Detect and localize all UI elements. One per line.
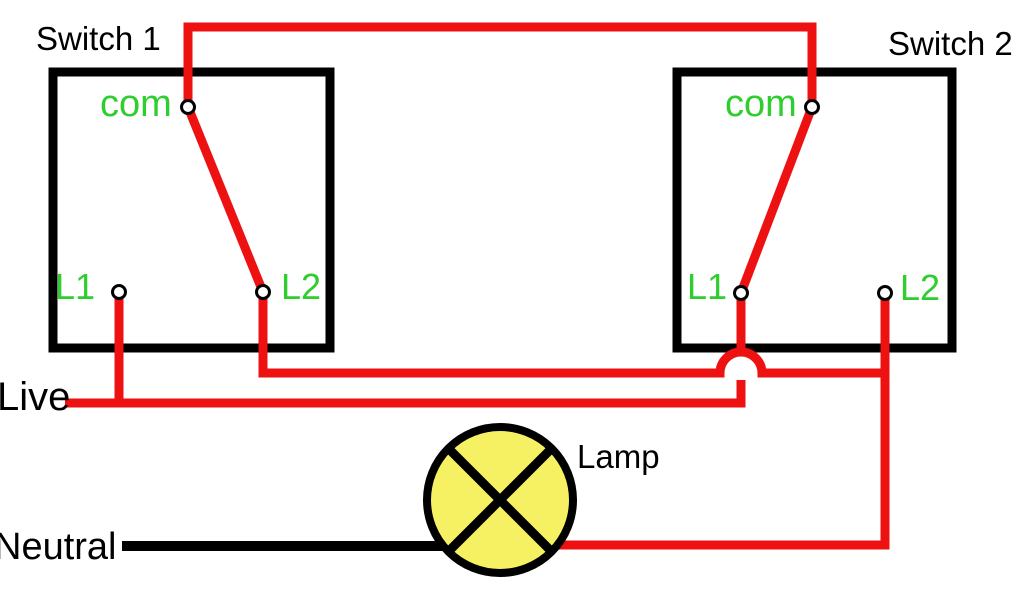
switch1-com-terminal (182, 101, 195, 114)
switch2-title: Switch 2 (888, 27, 1013, 60)
switch1-l2-label: L2 (281, 269, 321, 305)
switch2-com-terminal (806, 101, 819, 114)
switch2-l1-label: L1 (687, 269, 727, 305)
switch1-blade-wire (188, 107, 263, 292)
live-feed-wire (65, 380, 741, 403)
l2-strapper-wire-with-hop (263, 296, 881, 373)
com-to-com-top-wire (188, 27, 812, 107)
switch2-l2-to-lamp-wire (558, 299, 885, 545)
switch2-blade-wire (741, 107, 812, 293)
switch2-l1-terminal (735, 287, 748, 300)
switch2-com-label: com (725, 85, 797, 123)
switch1-l1-terminal (113, 286, 126, 299)
switch1-com-label: com (100, 85, 172, 123)
live-label: Live (0, 377, 70, 417)
switch2-l2-label: L2 (900, 270, 940, 306)
two-way-switch-wiring-diagram: Switch 1 Switch 2 com L1 L2 com L1 L2 Li… (0, 0, 1024, 600)
neutral-label: Neutral (0, 528, 117, 566)
switch1-l2-terminal (257, 286, 270, 299)
switch2-l2-terminal (879, 287, 892, 300)
lamp-label: Lamp (577, 440, 660, 473)
switch1-title: Switch 1 (36, 22, 161, 55)
switch1-l1-label: L1 (55, 269, 95, 305)
